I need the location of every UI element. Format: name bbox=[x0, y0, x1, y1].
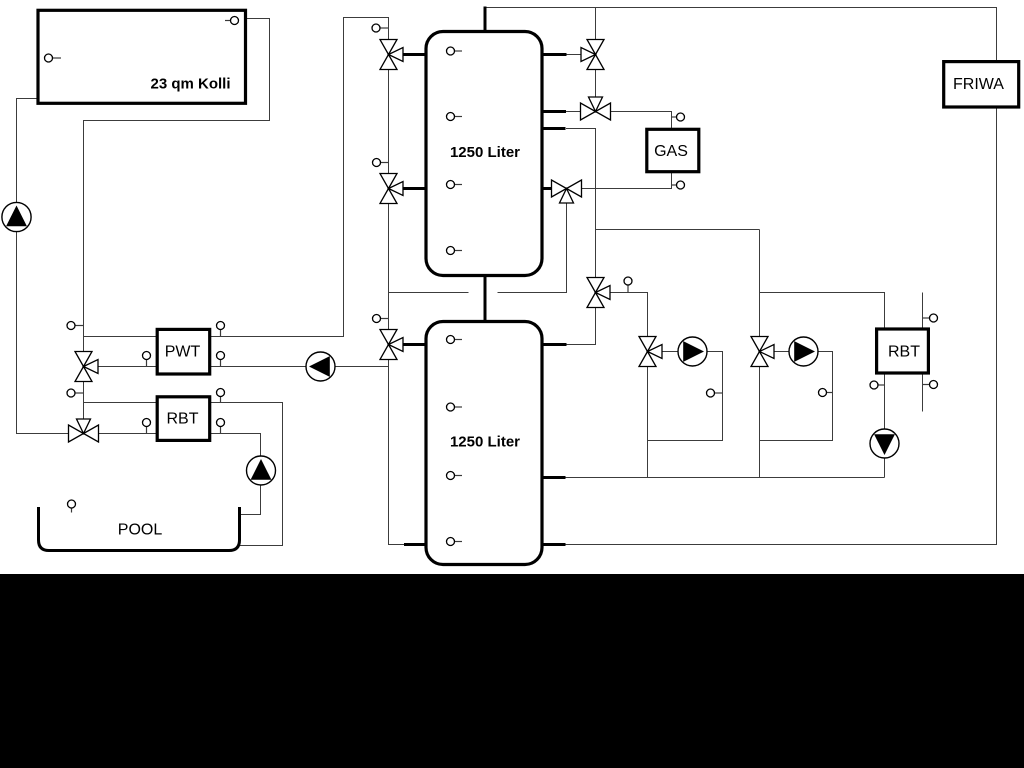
svg-text:RBT: RBT bbox=[167, 411, 199, 428]
svg-text:FRIWA: FRIWA bbox=[953, 76, 1004, 93]
svg-text:1250 Liter: 1250 Liter bbox=[450, 434, 520, 451]
svg-text:RBT: RBT bbox=[888, 344, 920, 361]
svg-text:GAS: GAS bbox=[654, 143, 688, 160]
svg-text:PWT: PWT bbox=[165, 344, 201, 361]
svg-text:POOL: POOL bbox=[118, 522, 163, 539]
svg-text:23 qm Kolli: 23 qm Kolli bbox=[150, 76, 230, 93]
svg-text:1250 Liter: 1250 Liter bbox=[450, 144, 520, 161]
